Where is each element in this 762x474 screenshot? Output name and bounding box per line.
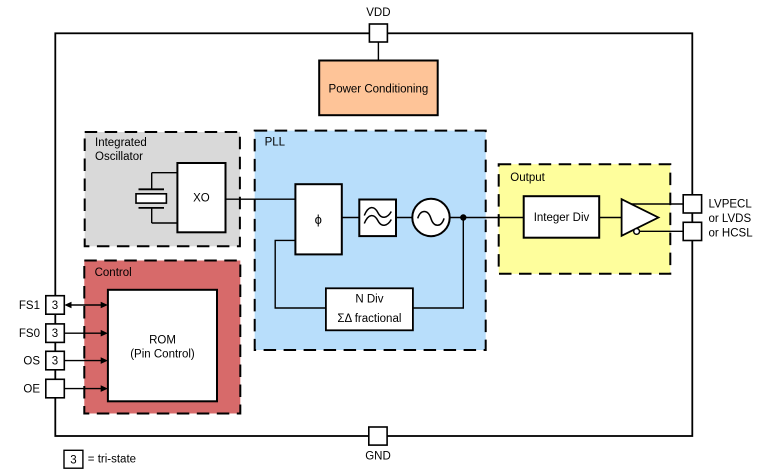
svg-text:Control: Control [95, 267, 132, 279]
svg-text:ϕ: ϕ [315, 212, 322, 227]
svg-text:OS: OS [23, 356, 40, 368]
svg-text:3: 3 [70, 455, 76, 467]
svg-text:XO: XO [193, 193, 210, 205]
svg-text:or HCSL: or HCSL [709, 228, 754, 240]
svg-text:GND: GND [365, 450, 391, 462]
svg-text:or LVDS: or LVDS [709, 213, 752, 225]
svg-text:= tri-state: = tri-state [88, 454, 136, 466]
svg-text:3: 3 [52, 300, 58, 312]
svg-text:LVPECL: LVPECL [709, 199, 753, 211]
svg-text:Integrated: Integrated [95, 137, 147, 149]
svg-text:Integer Div: Integer Div [534, 212, 590, 224]
svg-text:ΣΔ fractional: ΣΔ fractional [337, 313, 401, 325]
svg-text:VDD: VDD [366, 7, 390, 19]
svg-text:N Div: N Div [355, 294, 383, 306]
svg-text:3: 3 [52, 356, 58, 368]
svg-text:Oscillator: Oscillator [95, 151, 143, 163]
svg-text:FS1: FS1 [19, 300, 40, 312]
svg-text:3: 3 [52, 328, 58, 340]
svg-text:Power Conditioning: Power Conditioning [329, 84, 429, 96]
svg-text:FS0: FS0 [19, 328, 40, 340]
svg-text:ROM: ROM [149, 335, 176, 347]
svg-text:Output: Output [510, 172, 545, 184]
svg-text:OE: OE [23, 384, 40, 396]
svg-text:PLL: PLL [265, 137, 286, 149]
svg-text:(Pin Control): (Pin Control) [130, 349, 195, 361]
